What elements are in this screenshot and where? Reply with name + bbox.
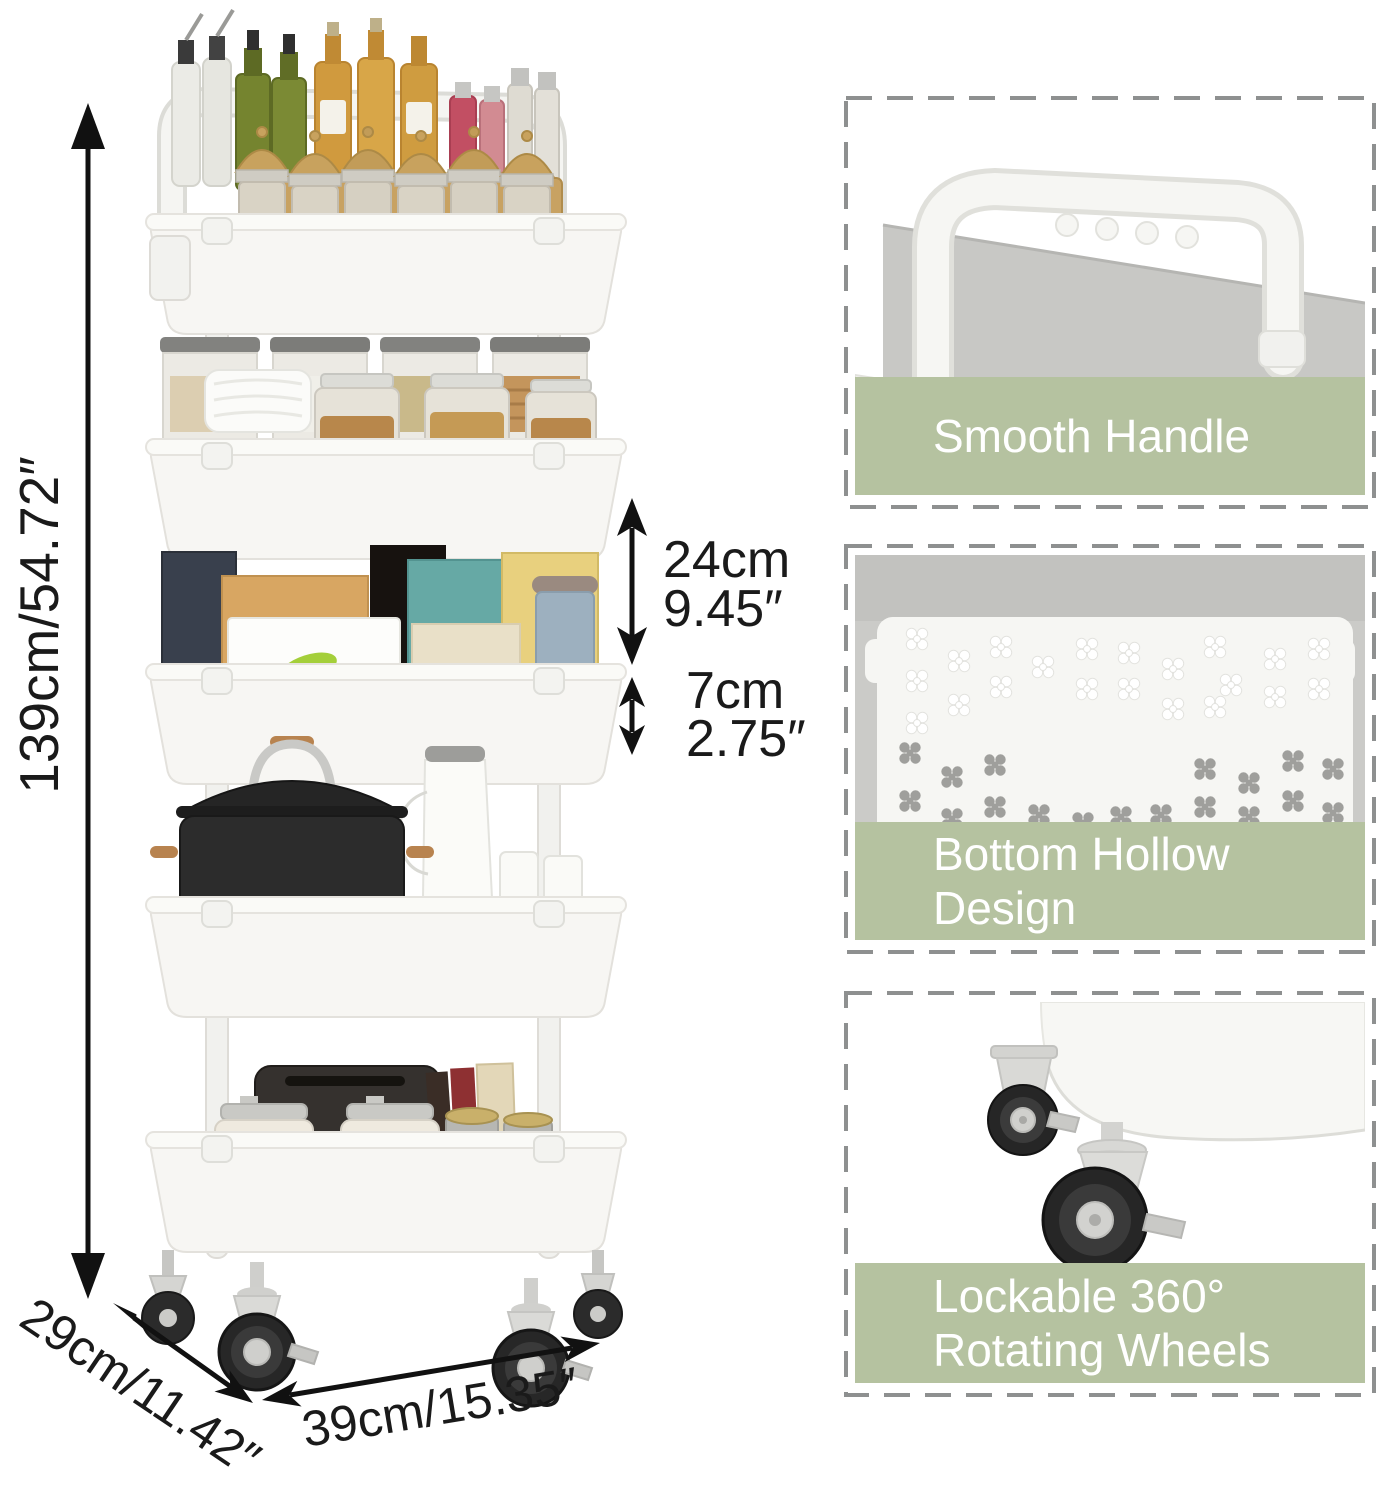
product-infographic: 139cm/54.72″ 24cm 9.45″ 7cm 2.75″ — [0, 0, 1381, 1500]
cart-photo-scene: 139cm/54.72″ 24cm 9.45″ 7cm 2.75″ — [0, 0, 843, 1500]
front-left-wheel — [219, 1262, 318, 1390]
caption-band: Smooth Handle — [855, 377, 1365, 495]
smooth-handle-photo: Smooth Handle — [855, 107, 1365, 495]
cart-illustration — [142, 10, 626, 1406]
caption-line: Design — [933, 881, 1365, 935]
feature-panel-bottom-hollow: Bottom Hollow Design — [843, 543, 1377, 955]
tier2-contents — [160, 337, 596, 452]
tier-gap-arrow — [617, 498, 647, 665]
caption-band: Lockable 360° Rotating Wheels — [855, 1263, 1365, 1383]
caption-line: Smooth Handle — [933, 409, 1365, 463]
caption-line: Rotating Wheels — [933, 1323, 1365, 1377]
height-dimension-arrow — [71, 103, 105, 1299]
caption-line: Bottom Hollow — [933, 827, 1365, 881]
basket-depth-label-in: 2.75″ — [686, 710, 806, 768]
basket-depth-arrow — [619, 677, 645, 755]
tier-gap-label-in: 9.45″ — [663, 580, 783, 638]
caption-line: Lockable 360° — [933, 1269, 1365, 1323]
feature-panel-smooth-handle: Smooth Handle — [843, 95, 1377, 510]
feature-panel-lockable-wheels: Lockable 360° Rotating Wheels — [843, 990, 1377, 1398]
height-dimension-label: 139cm/54.72″ — [8, 456, 70, 793]
bottom-hollow-photo: Bottom Hollow Design — [855, 555, 1365, 940]
caption-band: Bottom Hollow Design — [855, 822, 1365, 940]
back-right-wheel — [574, 1250, 622, 1338]
tier1-contents — [172, 10, 562, 228]
lockable-wheels-photo: Lockable 360° Rotating Wheels — [855, 1002, 1365, 1383]
